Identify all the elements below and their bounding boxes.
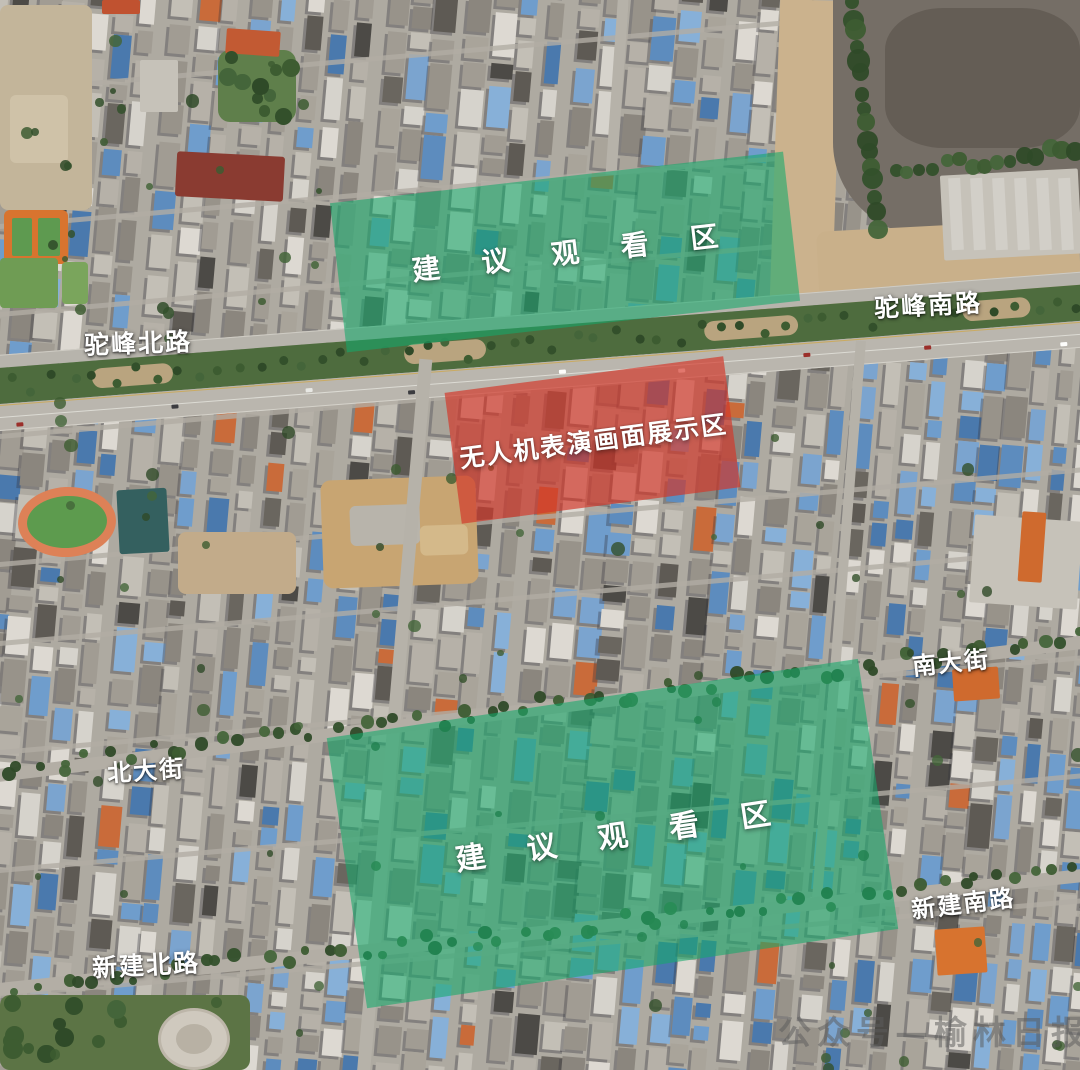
building: [288, 207, 306, 233]
building: [878, 962, 895, 1001]
vehicle: [559, 369, 566, 374]
building: [256, 876, 274, 903]
building: [870, 522, 887, 547]
dirt-patch: [10, 95, 68, 163]
tree: [264, 950, 277, 963]
tree: [267, 850, 273, 856]
building: [129, 787, 153, 816]
building: [1021, 790, 1037, 822]
building: [356, 631, 379, 670]
building: [671, 107, 694, 130]
building: [183, 776, 204, 793]
tree: [771, 434, 778, 441]
building: [792, 549, 815, 589]
building: [652, 634, 672, 660]
tree: [1004, 155, 1017, 168]
building: [685, 597, 708, 635]
building: [497, 580, 513, 607]
tree: [1073, 982, 1080, 992]
building: [13, 839, 35, 882]
building: [1031, 685, 1046, 713]
tree: [547, 345, 557, 355]
building: [1053, 447, 1067, 463]
building: [240, 126, 262, 146]
tree: [46, 369, 56, 379]
building: [754, 640, 777, 666]
building: [890, 566, 909, 596]
building: [546, 665, 571, 697]
building: [759, 9, 778, 31]
building: [172, 883, 195, 924]
building: [758, 586, 781, 612]
building: [349, 86, 367, 119]
tree: [611, 542, 625, 556]
building: [192, 656, 215, 691]
building: [961, 391, 983, 411]
construction-patch: [419, 524, 468, 556]
building: [654, 0, 679, 12]
building: [210, 476, 231, 493]
building: [378, 108, 400, 147]
building: [951, 750, 973, 778]
building: [693, 506, 717, 552]
building: [66, 815, 85, 857]
building: [538, 1056, 564, 1070]
tree: [259, 105, 270, 116]
building: [560, 1056, 585, 1070]
building: [466, 0, 492, 33]
building: [389, 0, 411, 26]
tree: [487, 341, 497, 351]
building: [775, 406, 798, 426]
building: [79, 687, 95, 705]
building: [264, 760, 283, 802]
building: [1044, 797, 1061, 816]
tree: [172, 366, 182, 376]
tree: [852, 574, 859, 581]
building: [787, 612, 809, 647]
building: [490, 1016, 513, 1061]
building: [198, 256, 215, 288]
building: [226, 266, 249, 307]
building: [136, 30, 153, 54]
tree: [298, 99, 309, 110]
tree: [55, 1028, 73, 1046]
building: [998, 758, 1016, 792]
tree: [93, 776, 104, 787]
building: [490, 652, 507, 693]
building: [328, 34, 347, 75]
building: [402, 1052, 427, 1070]
tree: [25, 387, 35, 397]
building: [550, 623, 575, 660]
building: [519, 17, 537, 35]
satellite-map: 建议观看区 无人机表演画面展示区 建议观看区 驼峰北路 驼峰南路 南大街 北大街…: [0, 0, 1080, 1070]
building: [322, 1029, 344, 1057]
building: [163, 666, 180, 690]
courtyard: [140, 60, 178, 112]
building: [812, 576, 829, 613]
building: [540, 89, 556, 117]
building: [808, 615, 826, 659]
tree: [212, 366, 222, 376]
building: [682, 0, 706, 3]
building: [463, 632, 483, 674]
building: [271, 992, 287, 1007]
building: [429, 1016, 449, 1059]
building: [289, 761, 307, 802]
building: [644, 94, 669, 129]
tree: [372, 610, 380, 618]
hill-shade: [885, 8, 1080, 148]
building: [891, 828, 907, 854]
building: [33, 311, 58, 340]
tree: [611, 325, 621, 335]
building: [913, 587, 928, 605]
building: [854, 960, 874, 1004]
building: [425, 1065, 444, 1070]
building: [1017, 827, 1034, 873]
building: [999, 445, 1025, 489]
building: [351, 436, 372, 458]
building: [205, 865, 221, 881]
building: [108, 709, 130, 730]
building: [467, 607, 485, 627]
building: [60, 903, 77, 924]
building: [547, 3, 564, 38]
building: [316, 821, 338, 852]
building: [1010, 923, 1026, 954]
building: [704, 37, 725, 68]
vehicle: [1060, 342, 1067, 347]
tree: [408, 620, 420, 632]
building: [655, 605, 675, 630]
building: [375, 1062, 399, 1070]
building: [796, 514, 818, 544]
building: [921, 487, 936, 507]
tree: [57, 576, 64, 583]
court: [12, 218, 32, 256]
building: [904, 383, 924, 426]
tree: [304, 733, 312, 741]
building: [1050, 718, 1068, 752]
building: [753, 81, 773, 106]
building: [253, 904, 272, 936]
building: [9, 594, 33, 610]
building: [92, 872, 116, 915]
vehicle: [171, 404, 178, 409]
tree: [273, 727, 284, 738]
building: [0, 813, 14, 828]
building: [925, 795, 947, 819]
building: [59, 646, 78, 665]
building: [975, 736, 999, 762]
building: [304, 15, 323, 51]
building: [647, 1047, 669, 1070]
building: [678, 10, 702, 42]
tree: [359, 357, 369, 367]
building: [927, 420, 942, 438]
building: [727, 633, 743, 647]
building: [697, 976, 713, 996]
building: [958, 416, 980, 439]
building: [230, 220, 254, 265]
tree: [10, 761, 21, 772]
tree: [314, 981, 324, 991]
building: [212, 765, 230, 807]
building: [994, 794, 1013, 839]
building: [24, 720, 46, 763]
building: [520, 0, 538, 15]
tree: [107, 1000, 126, 1019]
building: [534, 528, 555, 552]
building: [675, 959, 695, 993]
building: [400, 128, 423, 161]
building: [149, 827, 166, 851]
tree: [71, 373, 81, 383]
building: [81, 642, 100, 684]
building: [202, 885, 219, 917]
building: [543, 41, 561, 84]
building: [975, 488, 996, 503]
tree: [361, 715, 374, 728]
tree: [217, 731, 229, 743]
tree: [823, 1063, 834, 1070]
tree: [231, 734, 243, 746]
building: [235, 829, 252, 845]
building: [1, 659, 27, 703]
building: [513, 1057, 537, 1070]
building: [528, 578, 551, 622]
building: [359, 584, 382, 625]
building: [492, 12, 518, 58]
tree: [516, 529, 524, 537]
road-label-north-avenue: 北大街: [106, 748, 186, 788]
building: [6, 931, 28, 965]
building: [179, 795, 203, 840]
building: [496, 0, 520, 8]
building: [458, 89, 484, 128]
building: [513, 71, 532, 103]
building: [949, 509, 973, 547]
building: [715, 513, 735, 542]
tree: [333, 722, 344, 733]
building: [148, 234, 172, 269]
building: [412, 6, 434, 30]
building: [461, 1003, 476, 1022]
building: [293, 152, 311, 176]
tree: [336, 347, 346, 357]
orange-roof: [102, 0, 140, 14]
building: [0, 705, 23, 732]
building: [274, 674, 291, 690]
road-label-tuofeng-south: 驼峰南路: [873, 283, 983, 325]
building: [238, 491, 254, 509]
tree: [75, 304, 86, 315]
building: [46, 784, 66, 812]
building: [506, 143, 525, 176]
building: [675, 47, 699, 78]
tree: [1053, 297, 1063, 307]
tree: [15, 695, 22, 702]
tree: [855, 87, 870, 102]
building: [566, 983, 592, 1021]
tree: [962, 463, 975, 476]
building: [695, 1002, 711, 1018]
building: [1054, 677, 1072, 712]
tree: [234, 74, 251, 91]
building: [803, 975, 825, 990]
building: [913, 926, 936, 952]
building: [876, 731, 895, 755]
tree: [588, 333, 598, 343]
tree: [1071, 748, 1080, 762]
building: [320, 1058, 342, 1070]
building: [410, 32, 431, 49]
tree: [318, 355, 328, 365]
building: [11, 547, 37, 588]
building: [861, 620, 879, 652]
building: [556, 540, 582, 585]
building: [438, 636, 463, 668]
building: [374, 152, 397, 194]
building: [414, 0, 437, 4]
building: [954, 714, 976, 747]
building: [139, 0, 156, 25]
tree: [574, 330, 584, 340]
building: [1046, 753, 1065, 794]
building: [1054, 926, 1076, 963]
building: [723, 994, 746, 1014]
building: [1065, 1060, 1080, 1070]
building: [425, 112, 448, 133]
orange-ground: [1018, 511, 1047, 583]
tree: [334, 944, 347, 957]
building: [619, 1007, 640, 1045]
tree: [4, 995, 21, 1012]
tree: [35, 873, 41, 879]
tree: [301, 946, 310, 955]
building: [947, 813, 968, 828]
building: [658, 563, 679, 598]
building: [112, 295, 130, 329]
building: [910, 608, 926, 633]
tree: [511, 338, 521, 348]
building: [335, 596, 358, 639]
building: [269, 1011, 285, 1030]
building: [170, 600, 186, 616]
building: [769, 457, 793, 492]
building: [671, 996, 692, 1036]
building: [312, 857, 334, 897]
building: [593, 977, 617, 1016]
tree: [283, 956, 296, 969]
building: [300, 657, 316, 672]
building: [405, 1029, 429, 1051]
tree: [982, 586, 993, 597]
tree: [905, 699, 914, 708]
building: [276, 647, 294, 667]
building: [5, 616, 31, 656]
building: [102, 149, 122, 177]
building: [88, 571, 106, 605]
building: [403, 105, 425, 125]
building: [1001, 736, 1018, 756]
building: [918, 511, 935, 547]
tree: [225, 51, 238, 64]
building: [689, 558, 712, 595]
tree: [651, 335, 661, 345]
building: [588, 1062, 610, 1070]
sand-area: [178, 532, 296, 594]
tree: [867, 202, 886, 221]
building: [237, 800, 255, 822]
tree: [117, 104, 127, 114]
tree: [900, 166, 913, 179]
building: [354, 23, 372, 57]
building: [756, 616, 779, 638]
building: [262, 806, 279, 825]
building: [650, 16, 676, 61]
building: [407, 687, 432, 710]
tree: [412, 710, 423, 721]
building: [267, 1037, 283, 1054]
building: [1022, 1053, 1039, 1070]
building: [596, 659, 620, 681]
zone-label-north: 建议观看区: [368, 210, 762, 294]
building: [352, 60, 369, 80]
tree: [109, 35, 122, 48]
building: [253, 625, 270, 640]
building: [669, 1043, 688, 1064]
building: [780, 941, 797, 975]
building: [62, 865, 80, 900]
building: [382, 76, 403, 103]
building: [872, 500, 889, 518]
tree: [376, 717, 387, 728]
tree: [896, 886, 907, 897]
building: [247, 689, 265, 712]
tree: [163, 307, 174, 318]
zone-label-drone: 无人机表演画面展示区: [455, 404, 729, 475]
building: [1054, 404, 1071, 444]
building: [1028, 969, 1046, 1002]
building: [673, 80, 696, 103]
tree: [534, 691, 546, 703]
tree: [1010, 301, 1020, 311]
building: [570, 107, 592, 147]
building: [589, 1021, 613, 1060]
building: [713, 550, 732, 565]
building: [159, 693, 178, 737]
tree: [64, 162, 72, 170]
tree: [296, 1029, 303, 1036]
building: [199, 0, 223, 22]
building: [752, 1021, 773, 1043]
tree: [296, 361, 306, 371]
tree: [677, 339, 687, 349]
tree: [1018, 638, 1028, 648]
building: [897, 471, 917, 515]
building: [178, 228, 201, 255]
building: [967, 803, 993, 849]
building: [705, 622, 725, 654]
building: [145, 855, 164, 901]
tree: [1075, 627, 1080, 636]
building: [898, 755, 913, 777]
building: [633, 538, 655, 554]
tree: [760, 329, 770, 339]
